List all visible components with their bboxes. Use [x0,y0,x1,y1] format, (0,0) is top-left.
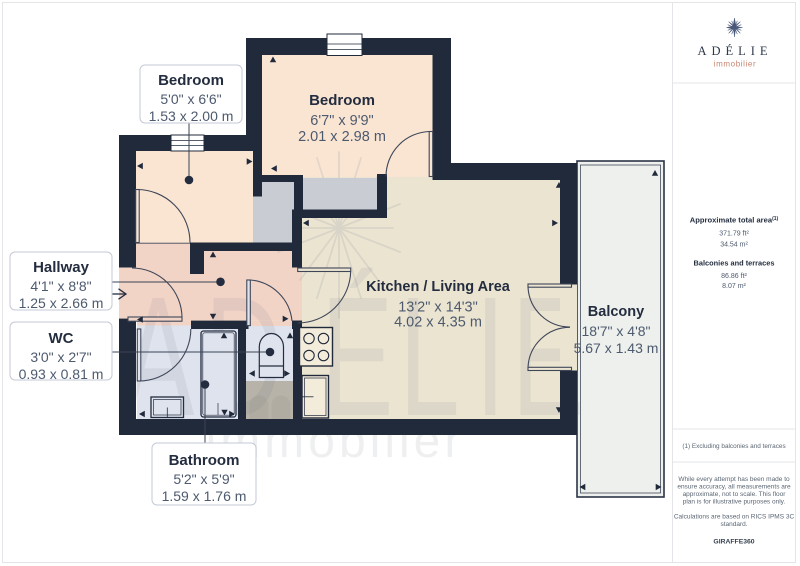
svg-text:18'7" x 4'8": 18'7" x 4'8" [582,323,651,339]
svg-text:While every attempt has been m: While every attempt has been made to [678,476,790,483]
svg-text:ADÉLIE: ADÉLIE [697,44,772,58]
svg-text:1.25 x 2.66 m: 1.25 x 2.66 m [19,295,104,311]
svg-text:8.07 m²: 8.07 m² [722,283,746,290]
svg-text:1.59 x 1.76 m: 1.59 x 1.76 m [162,488,247,504]
svg-text:5'2" x 5'9": 5'2" x 5'9" [173,471,234,487]
svg-text:Kitchen / Living Area: Kitchen / Living Area [366,279,511,295]
svg-text:86.86 ft²: 86.86 ft² [721,273,747,280]
svg-text:Bedroom: Bedroom [158,72,224,89]
svg-text:6'7" x 9'9": 6'7" x 9'9" [310,113,373,129]
svg-text:2.01 x 2.98 m: 2.01 x 2.98 m [298,129,386,145]
svg-text:5.67 x 1.43 m: 5.67 x 1.43 m [574,340,659,356]
svg-text:13'2" x 14'3": 13'2" x 14'3" [398,300,478,316]
svg-text:immobilier: immobilier [714,60,756,69]
svg-text:Balconies and terraces: Balconies and terraces [694,259,775,268]
svg-text:(1) Excluding balconies and te: (1) Excluding balconies and terraces [682,443,785,450]
svg-text:Calculations are based on RICS: Calculations are based on RICS IPMS 3C [674,514,795,521]
svg-text:4'1" x 8'8": 4'1" x 8'8" [30,278,91,294]
svg-text:plan is for illustrative purpo: plan is for illustrative purposes only. [683,499,786,506]
svg-text:Approximate total area(1): Approximate total area(1) [690,216,779,225]
svg-text:371.79 ft²: 371.79 ft² [719,231,749,238]
svg-text:Bathroom: Bathroom [169,452,240,469]
svg-text:Hallway: Hallway [33,259,90,276]
svg-text:Balcony: Balcony [588,304,644,320]
svg-text:0.93 x 0.81 m: 0.93 x 0.81 m [19,366,104,382]
svg-text:4.02 x 4.35 m: 4.02 x 4.35 m [394,315,482,331]
svg-text:ensure accuracy, all measureme: ensure accuracy, all measurements are [677,484,791,491]
svg-text:GIRAFFE360: GIRAFFE360 [713,539,754,546]
svg-text:1.53 x 2.00 m: 1.53 x 2.00 m [149,108,234,124]
svg-text:Bedroom: Bedroom [309,92,375,109]
svg-text:approximate, not to scale. Thi: approximate, not to scale. This floor [683,491,787,498]
svg-text:5'0" x 6'6": 5'0" x 6'6" [160,91,221,107]
svg-text:3'0" x 2'7": 3'0" x 2'7" [30,349,91,365]
svg-text:34.54 m²: 34.54 m² [720,242,748,249]
svg-text:WC: WC [49,330,74,347]
svg-text:standard.: standard. [720,521,747,528]
